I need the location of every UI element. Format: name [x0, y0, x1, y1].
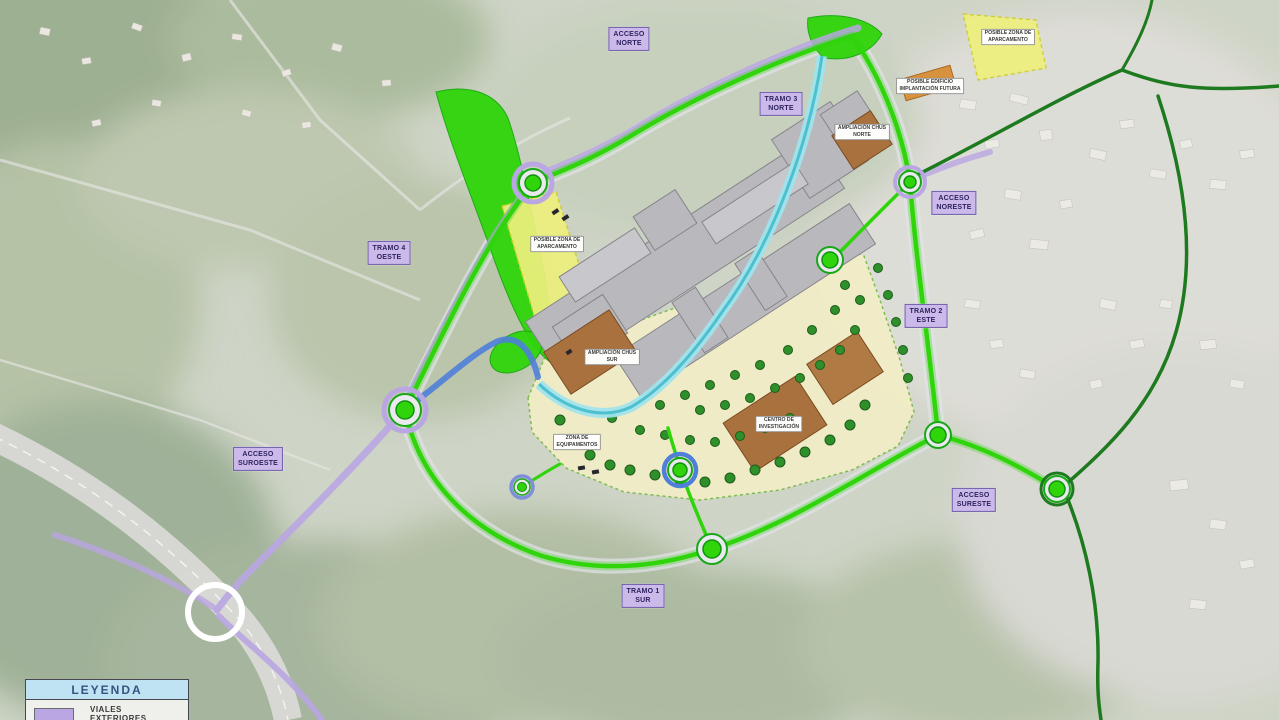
roundabout-far-east — [1041, 473, 1073, 505]
roundabout-northeast — [895, 167, 925, 197]
legend-swatch-viales-exteriores — [34, 708, 74, 720]
site-label-posible-aparcamiento-oeste: POSIBLE ZONA DE APARCAMENTO — [530, 236, 583, 252]
roundabout-south — [697, 534, 727, 564]
site-label-zona-equipamientos: ZONA DE EQUIPAMENTOS — [553, 434, 601, 450]
plan-map-svg — [0, 0, 1279, 720]
legend: LEYENDA VIALES EXTERIORES — [25, 679, 189, 720]
map-label-acceso-noreste: ACCESO NORESTE — [931, 191, 976, 215]
site-label-posible-edificio-futuro: POSIBLE EDIFICIO IMPLANTACIÓN FUTURA — [896, 78, 964, 94]
roundabout-campus-north — [817, 247, 843, 273]
roundabout-campus-center — [664, 454, 696, 486]
site-label-ampliacion-chus-sur: AMPLIACIÓN CHUS SUR — [585, 349, 640, 365]
map-label-tramo-1-sur: TRAMO 1 SUR — [622, 584, 665, 608]
map-label-tramo-3-norte: TRAMO 3 NORTE — [760, 92, 803, 116]
map-label-acceso-norte: ACCESO NORTE — [608, 27, 649, 51]
roundabout-campus-west — [511, 476, 533, 498]
legend-item-viales-exteriores: VIALES EXTERIORES — [34, 705, 180, 720]
roundabout-northwest — [514, 164, 552, 202]
map-label-acceso-suroeste: ACCESO SUROESTE — [233, 447, 283, 471]
site-label-centro-investigacion: CENTRO DE INVESTIGACIÓN — [755, 416, 802, 432]
legend-title: LEYENDA — [25, 679, 189, 700]
roundabout-west — [384, 389, 426, 431]
map-canvas: ACCESO NORTE TRAMO 3 NORTE ACCESO NOREST… — [0, 0, 1279, 720]
map-label-acceso-sureste: ACCESO SURESTE — [952, 488, 996, 512]
map-label-tramo-2-este: TRAMO 2 ESTE — [905, 304, 948, 328]
map-label-tramo-4-oeste: TRAMO 4 OESTE — [368, 241, 411, 265]
site-label-posible-aparcamiento-noreste: POSIBLE ZONA DE APARCAMENTO — [981, 29, 1034, 45]
roundabout-southeast — [925, 422, 951, 448]
legend-item-label: VIALES EXTERIORES — [90, 705, 180, 720]
legend-body: VIALES EXTERIORES — [25, 700, 189, 720]
site-label-ampliacion-chus-norte: AMPLIACIÓN CHUS NORTE — [835, 124, 890, 140]
